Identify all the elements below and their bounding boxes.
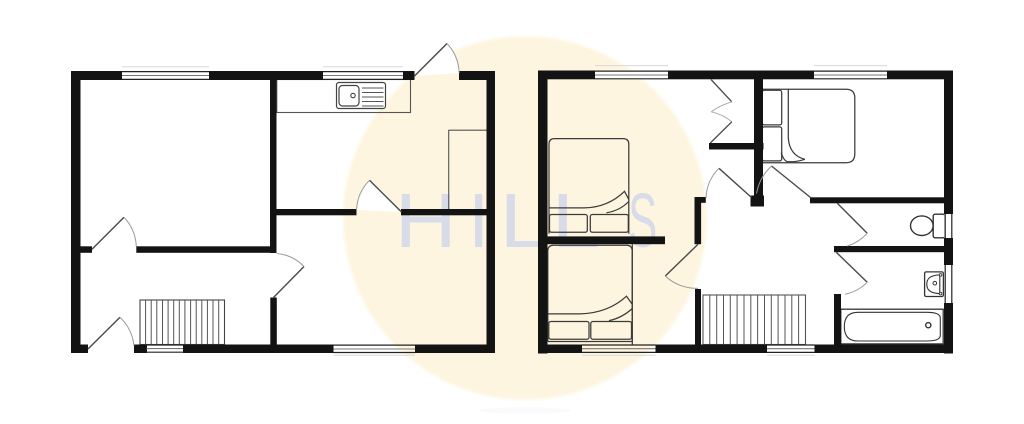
svg-text:I: I — [468, 178, 489, 264]
svg-text:H: H — [395, 178, 457, 264]
svg-text:L: L — [552, 179, 600, 264]
